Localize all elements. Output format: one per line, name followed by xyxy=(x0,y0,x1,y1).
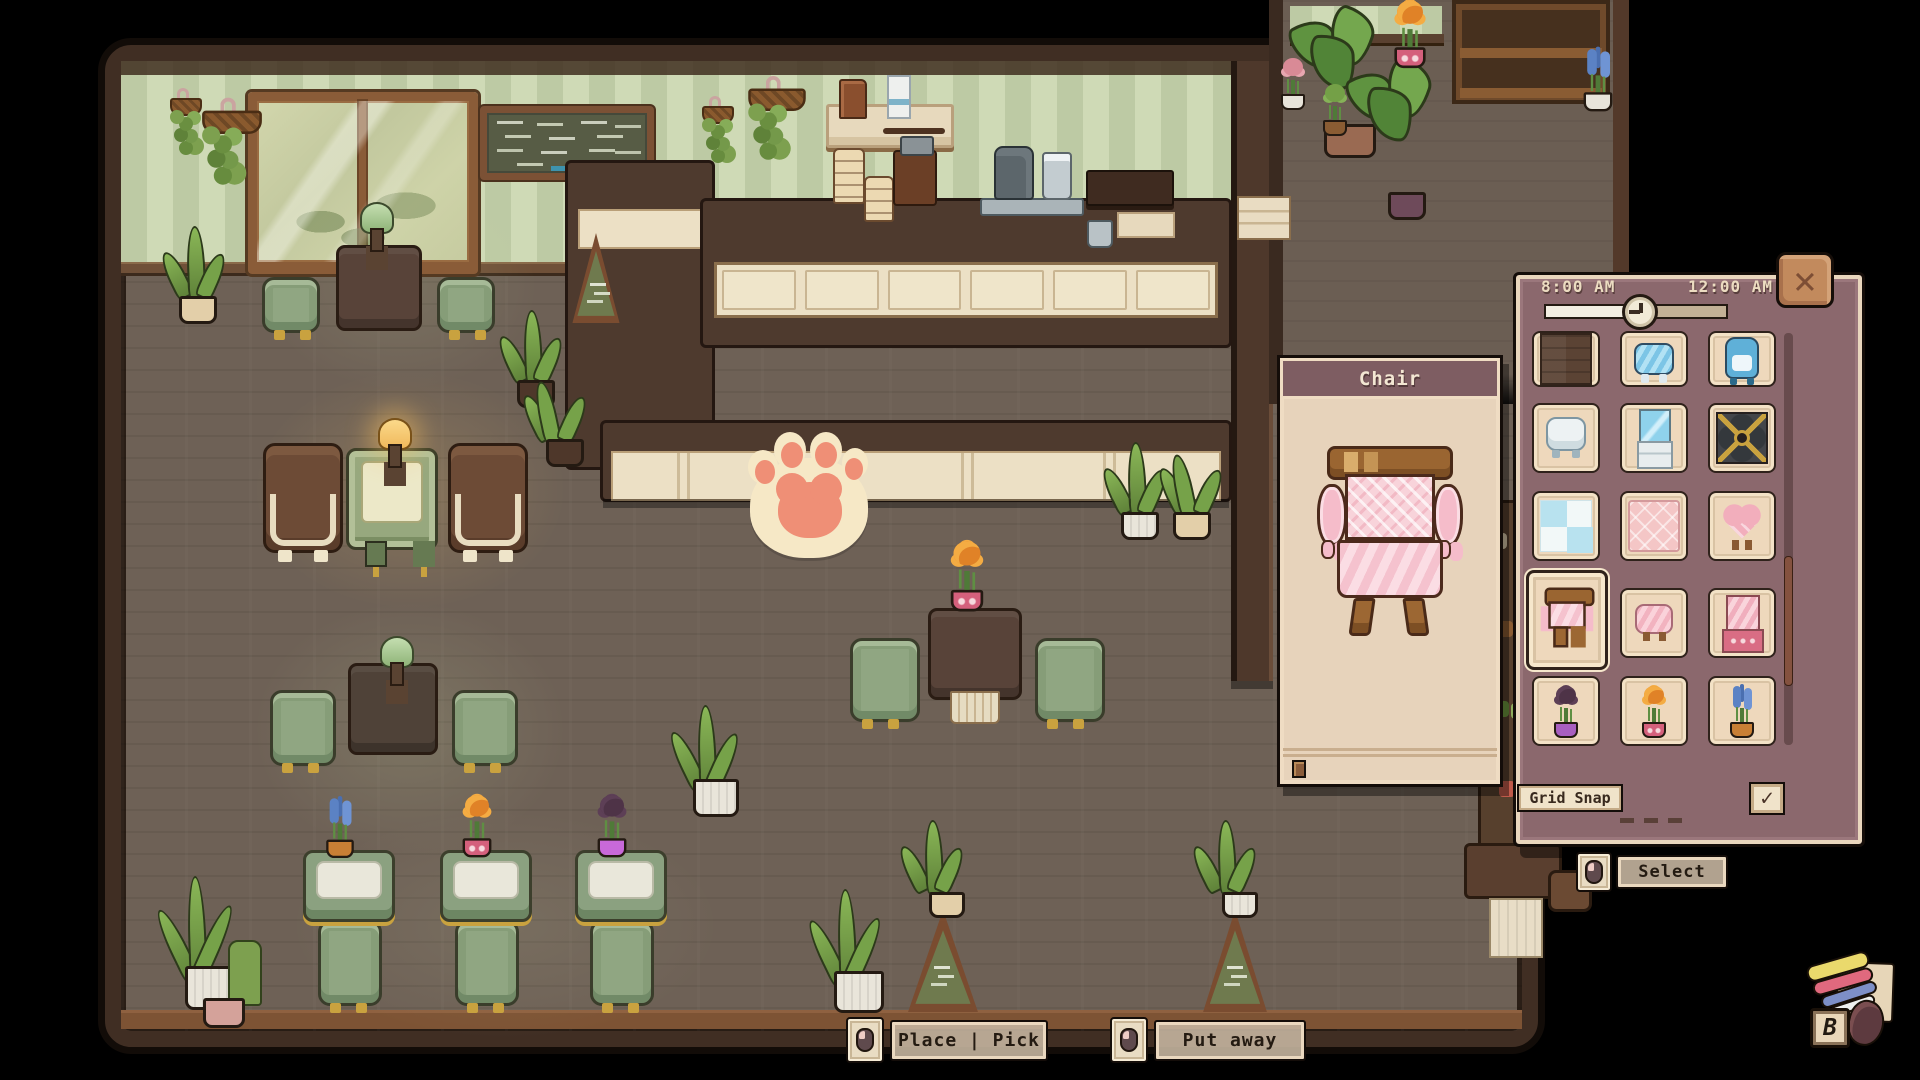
mouse-left-click-icon xyxy=(856,1028,874,1052)
paw-print-rug[interactable] xyxy=(748,432,872,562)
flower-table[interactable] xyxy=(575,850,667,922)
decorate-mode-button[interactable]: B xyxy=(1800,948,1920,1080)
hanging-plant[interactable] xyxy=(200,98,265,223)
put-away-button[interactable]: Put away xyxy=(1154,1020,1306,1061)
flower-table[interactable] xyxy=(440,850,532,922)
register-stand xyxy=(1237,196,1291,240)
cup-stack[interactable] xyxy=(864,176,894,222)
key-hint-b: B xyxy=(1810,1008,1850,1048)
mouse-left-click-icon xyxy=(1585,860,1603,884)
cactus[interactable] xyxy=(228,940,262,1006)
put-away-mouse-hint xyxy=(1110,1017,1148,1063)
espresso-tray[interactable] xyxy=(980,198,1084,216)
blue-flower-pot[interactable] xyxy=(1580,47,1616,112)
green-chair[interactable] xyxy=(590,920,654,1006)
game-screen: Chair 8:00 AM 12:00 AM Grid Snap ✓ ✕ Sel… xyxy=(0,0,1920,1080)
orange-flower-pot[interactable] xyxy=(1391,0,1430,68)
catalog-item-dark-petal-rug[interactable] xyxy=(1708,403,1776,473)
potted-plant[interactable] xyxy=(1164,416,1220,540)
footprint-icon xyxy=(1292,760,1306,778)
potted-plant[interactable] xyxy=(167,218,229,324)
pink-flower-pot[interactable] xyxy=(1278,56,1308,110)
catalog-item-pink-cushion-chair[interactable] xyxy=(1620,588,1688,658)
orange-flower-pot[interactable] xyxy=(947,539,988,612)
catalog-item-blue-glass-vanity[interactable] xyxy=(1620,403,1688,473)
potted-plant[interactable] xyxy=(528,375,602,467)
catalog-item-pink-frilly-armchair-selected[interactable] xyxy=(1526,570,1608,670)
place-pick-mouse-hint xyxy=(846,1017,884,1063)
hanging-plant[interactable] xyxy=(746,76,809,196)
catalog-item-pink-heart-chair[interactable] xyxy=(1708,491,1776,561)
purple-flower-pot[interactable] xyxy=(594,793,630,858)
green-chair[interactable] xyxy=(262,277,320,333)
hanging-plant[interactable] xyxy=(700,96,736,166)
green-chair[interactable] xyxy=(452,690,518,766)
day-end-time: 12:00 AM xyxy=(1688,277,1773,296)
place-pick-button[interactable]: Place | Pick xyxy=(890,1020,1048,1061)
small-plant[interactable] xyxy=(1320,82,1350,136)
armchair[interactable] xyxy=(448,443,528,553)
catalog-item-blue-flower-pot[interactable] xyxy=(1708,676,1776,746)
green-chair[interactable] xyxy=(270,690,336,766)
mug[interactable] xyxy=(1087,220,1113,248)
select-button[interactable]: Select xyxy=(1616,855,1728,889)
counter-drawers xyxy=(714,262,1218,318)
cactus-pot xyxy=(203,998,245,1028)
close-icon[interactable]: ✕ xyxy=(1776,252,1834,308)
stand-plant[interactable] xyxy=(905,800,989,918)
catalog-item-wood-floor-tile[interactable] xyxy=(1532,331,1600,387)
green-chair[interactable] xyxy=(437,277,495,333)
catalog-item-white-rounded-chair[interactable] xyxy=(1532,403,1600,473)
pink-frilly-armchair-preview xyxy=(1317,446,1463,658)
catalog-item-purple-flower-pot[interactable] xyxy=(1532,676,1600,746)
catalog-item-pink-diamond-rug[interactable] xyxy=(1620,491,1688,561)
coffee-grinder[interactable] xyxy=(893,150,937,206)
room-divider-wall xyxy=(1231,61,1273,681)
preview-title: Chair xyxy=(1283,361,1497,399)
green-table-lamp[interactable] xyxy=(358,202,392,254)
catalog-scrollbar-thumb[interactable] xyxy=(1784,556,1793,686)
table[interactable] xyxy=(928,608,1022,700)
catalog-item-blue-checker-tile[interactable] xyxy=(1532,491,1600,561)
green-chair[interactable] xyxy=(318,920,382,1006)
green-table-lamp[interactable] xyxy=(378,636,412,688)
panel-drag-handle[interactable] xyxy=(1620,818,1634,823)
day-start-time: 8:00 AM xyxy=(1541,277,1615,296)
catalog-item-orange-flower-pot[interactable] xyxy=(1620,676,1688,746)
green-chair[interactable] xyxy=(455,920,519,1006)
orange-flower-pot[interactable] xyxy=(459,793,495,858)
espresso-machine[interactable] xyxy=(994,146,1034,200)
flower-table[interactable] xyxy=(303,850,395,922)
grid-snap-checkbox[interactable]: ✓ xyxy=(1749,782,1785,815)
potted-plant-tall[interactable] xyxy=(1108,382,1172,540)
catalog-item-blue-penguin-chair[interactable] xyxy=(1708,331,1776,387)
blue-flower-pot[interactable] xyxy=(323,796,358,858)
green-chair[interactable] xyxy=(1035,638,1105,722)
green-chair[interactable] xyxy=(850,638,920,722)
potted-plant-tall[interactable] xyxy=(678,675,754,817)
select-mouse-hint xyxy=(1576,852,1612,892)
catalog-item-blue-striped-chair[interactable] xyxy=(1620,331,1688,387)
cup-stack[interactable] xyxy=(833,148,865,204)
grid-snap-label: Grid Snap xyxy=(1517,784,1623,812)
clock-icon xyxy=(1622,294,1658,330)
stand-plant[interactable] xyxy=(1198,798,1282,918)
potted-plant-large[interactable] xyxy=(1352,60,1462,220)
mouse-right-click-icon xyxy=(1120,1028,1138,1052)
preview-footer-divider xyxy=(1283,748,1497,751)
wall-shelf-coffee-milk[interactable] xyxy=(826,104,954,148)
table[interactable] xyxy=(336,245,422,331)
counter-cream-box xyxy=(1117,212,1175,238)
catalog-item-pink-striped-vanity[interactable] xyxy=(1708,588,1776,658)
armchair[interactable] xyxy=(263,443,343,553)
coffee-pot[interactable] xyxy=(1042,152,1072,200)
counter-dark-shelf xyxy=(1086,170,1174,206)
potted-plant-tall[interactable] xyxy=(818,845,900,1013)
orange-table-lamp[interactable] xyxy=(376,418,410,470)
